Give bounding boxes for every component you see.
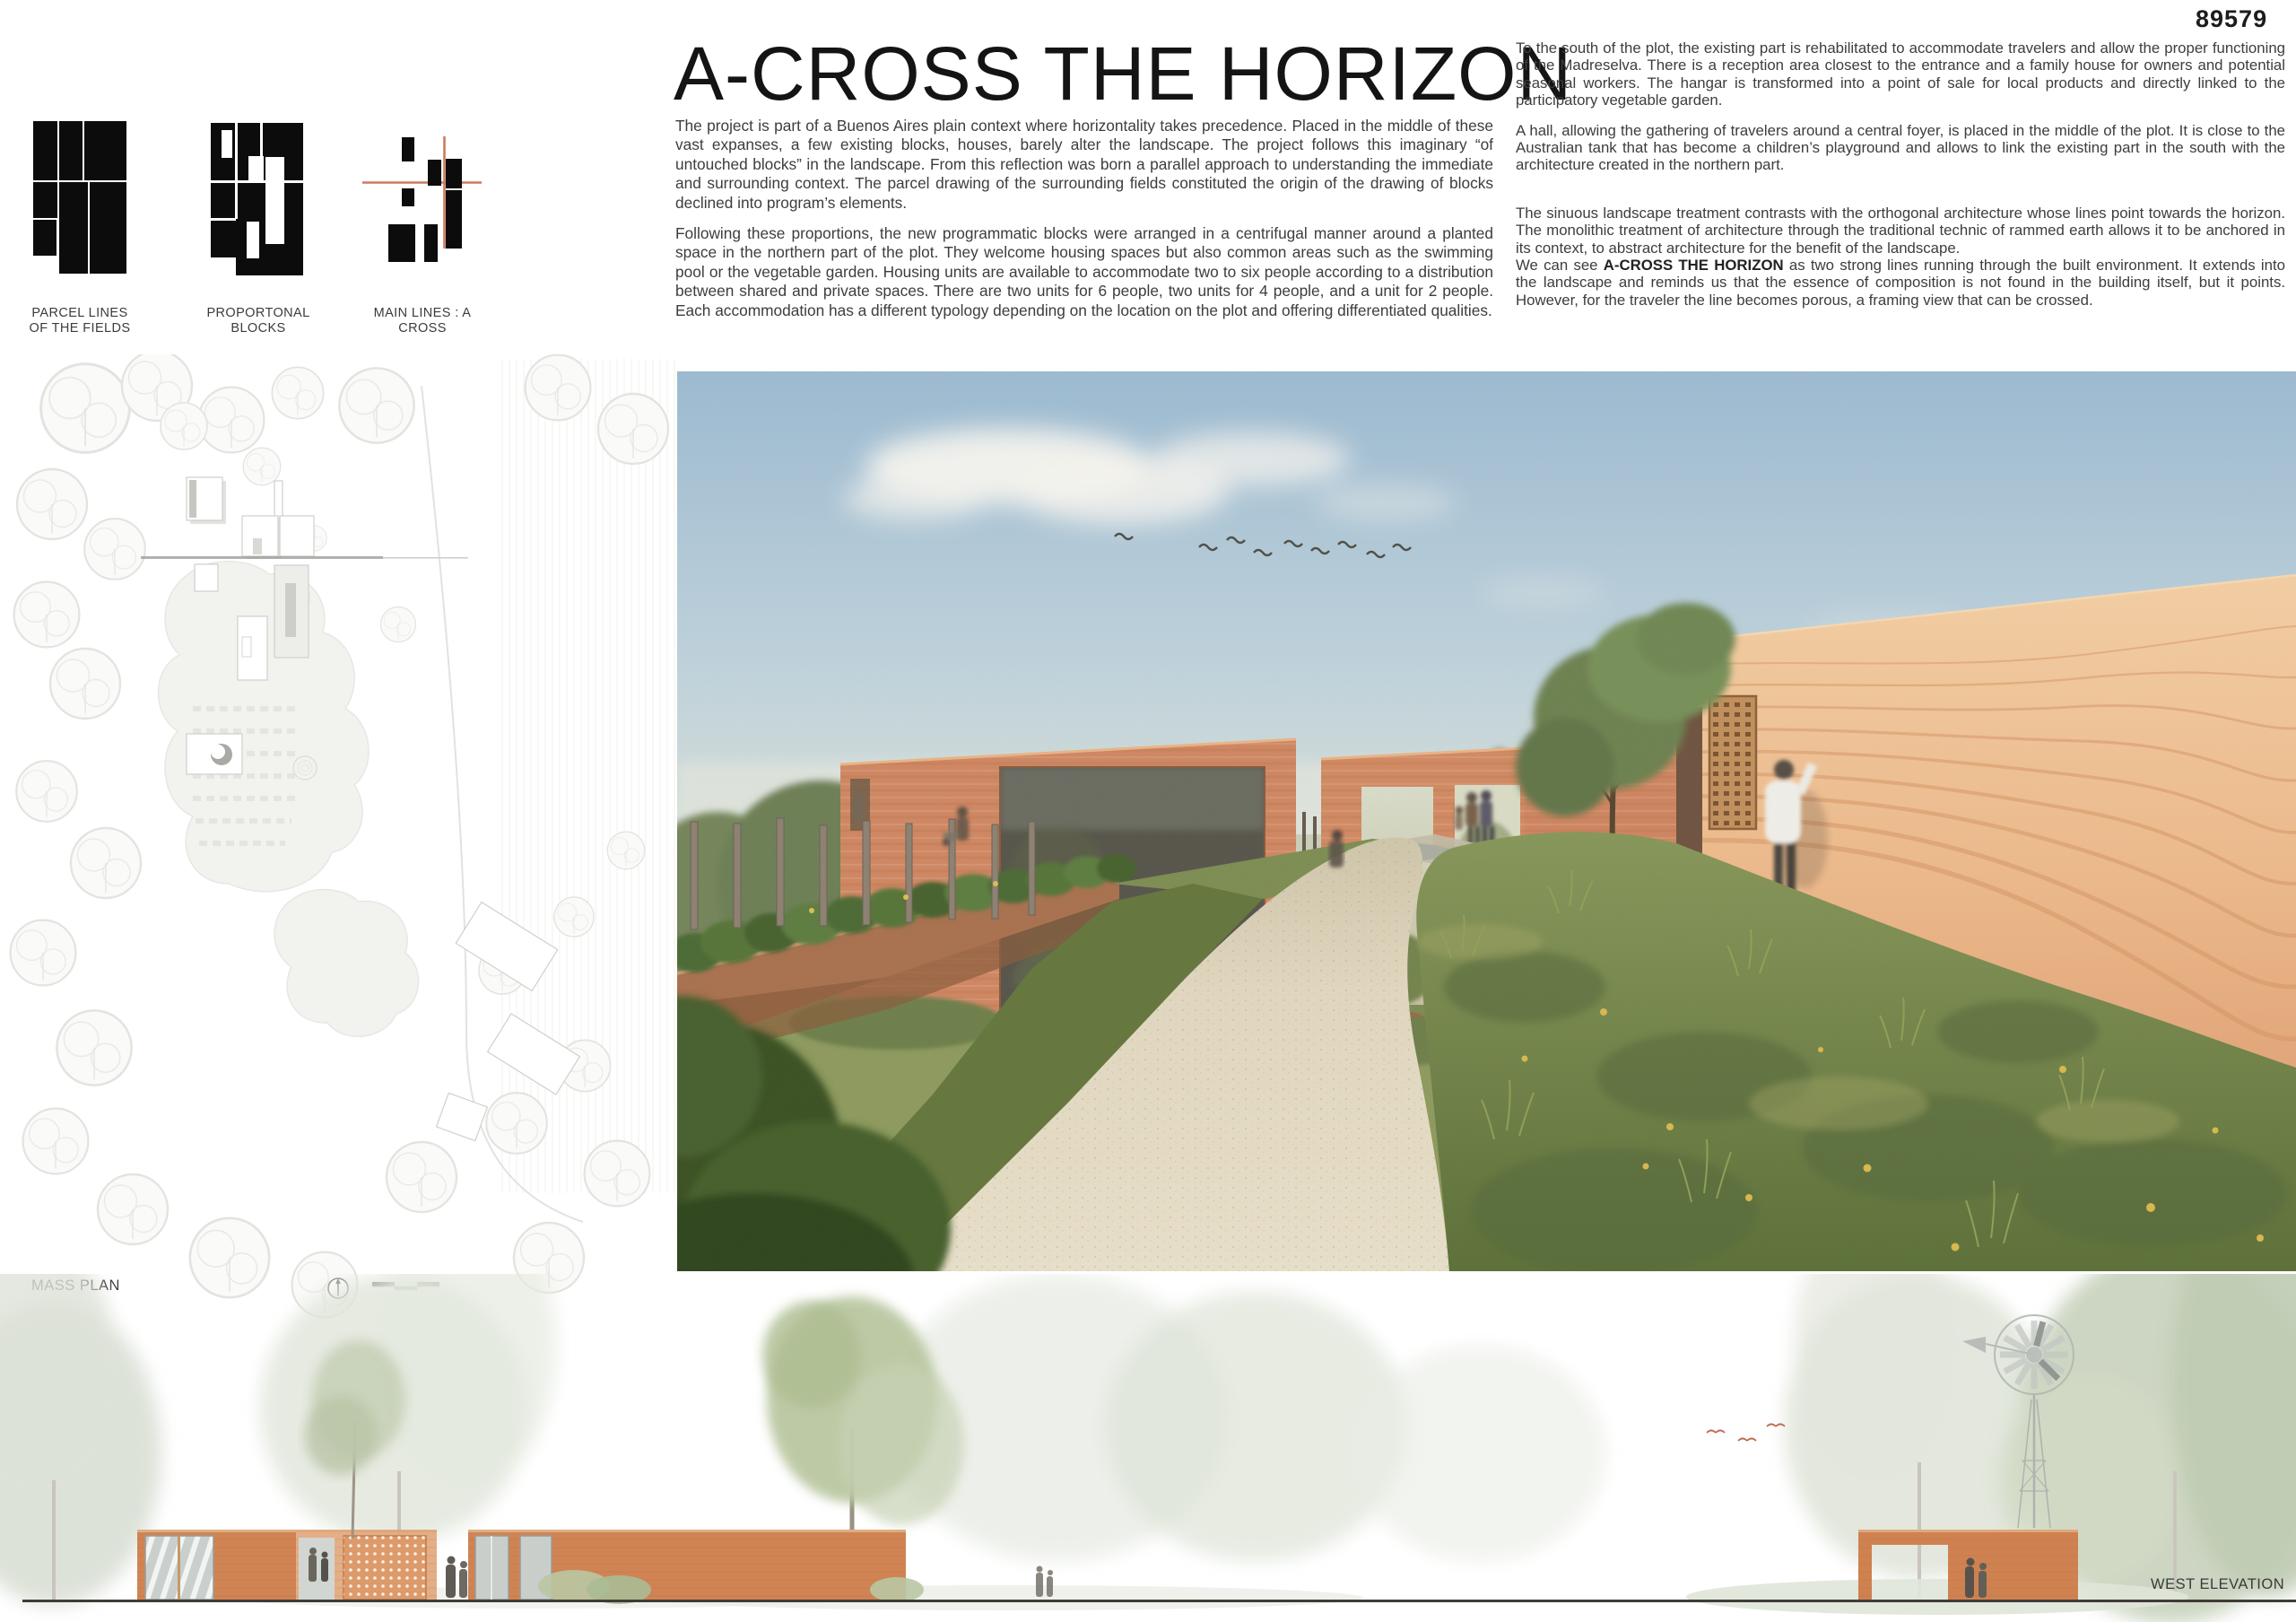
diagram-main-lines-cross (362, 136, 482, 262)
intro-paragraph-2: Following these proportions, the new pro… (675, 224, 1493, 320)
main-render-illustration (677, 371, 2296, 1271)
concept-diagrams-illustration (0, 0, 682, 354)
diagram-label-line1: PARCEL LINES (27, 306, 133, 321)
main-axis-line (141, 556, 383, 559)
west-elevation-illustration (0, 1274, 2296, 1622)
description-text-column: To the south of the plot, the existing p… (1516, 39, 2285, 309)
grain-overlay (677, 371, 2296, 1271)
diagram-proportional-blocks (211, 123, 303, 275)
page-title: A-CROSS THE HORIZON (674, 31, 1572, 118)
diagram-parcel-lines (33, 121, 126, 274)
entry-number: 89579 (2196, 5, 2267, 33)
mass-plan-illustration (0, 354, 677, 1319)
elevation-building-a (137, 1530, 296, 1600)
description-paragraph-1: To the south of the plot, the existing p… (1516, 39, 2285, 109)
ground-line (22, 1600, 2296, 1602)
intro-text-column: The project is part of a Buenos Aires pl… (675, 117, 1493, 320)
red-birds (1707, 1425, 1785, 1442)
diagram-label-proportional-blocks: PROPORTONAL BLOCKS (195, 306, 322, 336)
cross-lines (362, 136, 482, 249)
diagram-label-main-lines: MAIN LINES : A CROSS (359, 306, 486, 336)
competition-board: 89579 (0, 0, 2296, 1622)
description-paragraph-2: A hall, allowing the gathering of travel… (1516, 122, 2285, 174)
elevation-building-b (468, 1530, 924, 1604)
diagram-label-line2: OF THE FIELDS (27, 321, 133, 336)
title-reference-bold: A-CROSS THE HORIZON (1604, 257, 1784, 274)
intro-paragraph-1: The project is part of a Buenos Aires pl… (675, 117, 1493, 213)
west-elevation-label: WEST ELEVATION (2151, 1576, 2284, 1593)
elevation-building-a2 (296, 1530, 437, 1600)
diagram-label-parcel-lines: PARCEL LINES OF THE FIELDS (27, 306, 133, 336)
description-paragraph-3: The sinuous landscape treatment contrast… (1516, 205, 2285, 309)
